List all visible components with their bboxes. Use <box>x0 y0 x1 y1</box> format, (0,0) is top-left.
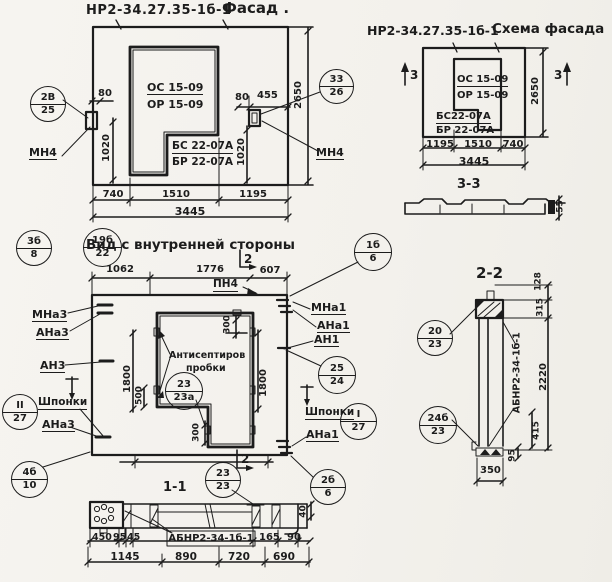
marker-33-26-top: 33 <box>330 74 344 86</box>
dim-500: 500 <box>136 381 145 411</box>
schema-title-name: Схема фасада <box>492 23 604 37</box>
inner-view-linework <box>43 250 358 506</box>
dim-1020-right: 1020 <box>237 132 247 172</box>
dim-300-top: 300 <box>224 310 233 340</box>
dim-1510-schema: 1510 <box>458 140 498 150</box>
dim-300-bottom: 300 <box>193 418 202 448</box>
facade-br-mark: БР 22-07А <box>172 157 233 168</box>
marker-20-23: 20 23 <box>417 320 453 356</box>
facade-bs-mark: БС 22-07А <box>172 141 233 154</box>
dim-80-right: 80 <box>235 93 249 103</box>
dim-455: 455 <box>257 91 278 101</box>
marker-3b-8: 3б 8 <box>16 230 52 266</box>
dim-40: 40 <box>300 499 309 525</box>
marker-23-23-top: 23 <box>216 468 230 480</box>
facade-title-code: НР2-34.27.35-1б-1 <box>86 4 231 17</box>
marker-24b-23-bottom: 23 <box>420 425 456 438</box>
schema-bs-mark: БС22-07А <box>436 112 491 124</box>
dim-3445-schema: 3445 <box>454 156 494 167</box>
ana3-label-2: АНа3 <box>42 419 75 432</box>
dim-1800-right: 1800 <box>259 363 269 403</box>
mna1-label: МНа1 <box>311 302 346 315</box>
marker-19b-22: 19б 22 <box>83 228 122 267</box>
facade-title-name: Фасад . <box>222 1 289 16</box>
dim-2650-facade: 2650 <box>294 75 304 115</box>
shponki-label-left: Шпонки <box>38 397 87 410</box>
marker-4b-10-top: 4б <box>23 467 37 479</box>
dim-607: 607 <box>250 266 290 276</box>
dim-740-schema: 740 <box>493 140 533 150</box>
section11-title: 1-1 <box>163 481 187 494</box>
facade-os-mark: ОС 15-09 <box>147 82 203 95</box>
marker-2v-25-bottom: 25 <box>31 104 65 117</box>
dim-2220: 2220 <box>539 357 549 397</box>
marker-2b-6: 2б 6 <box>310 469 346 505</box>
schema-br-mark: БР 22-07А <box>436 126 494 136</box>
marker-2b-6-bottom: 6 <box>311 487 345 500</box>
drawing-linework <box>0 0 612 582</box>
section33-title: 3-3 <box>457 178 481 191</box>
dim-80-left: 80 <box>98 89 112 99</box>
marker-24b-23-top: 24б <box>428 413 449 425</box>
dim-55-section33: 55 <box>557 194 566 220</box>
marker-25-24-top: 25 <box>330 363 344 375</box>
dim-95-s22: 95 <box>509 443 518 469</box>
marker-20-23-top: 20 <box>428 326 442 338</box>
dim-165: 165 <box>259 533 280 543</box>
section22-title: 2-2 <box>476 266 503 281</box>
technical-drawing-sheet: НР2-34.27.35-1б-1 Фасад . НР2-34.27.35-1… <box>0 0 612 582</box>
marker-33-26-bottom: 26 <box>320 86 353 99</box>
dim-90: 90 <box>287 533 301 543</box>
marker-II-27-top: II <box>16 400 23 412</box>
marker-1b-6: 1б 6 <box>354 233 392 271</box>
marker-II-27: II 27 <box>2 394 38 430</box>
dim-1145: 1145 <box>105 552 145 563</box>
antiseptic-label-1: Антисептиров <box>169 351 245 361</box>
marker-2v-25-top: 2В <box>41 92 56 104</box>
section2-mark-top: 2 <box>244 253 252 265</box>
marker-23-23a-bottom: 23а <box>166 391 202 404</box>
schema-os-mark: ОС 15-09 <box>457 75 508 87</box>
ana1-label-2: АНа1 <box>306 429 339 442</box>
dim-740-facade: 740 <box>93 190 133 200</box>
dim-315: 315 <box>537 293 546 323</box>
mna3-label: МНа3 <box>32 309 67 322</box>
dim-415: 415 <box>533 416 542 446</box>
abnr-label-s11: АБНР2-34-1б-1 <box>168 534 254 544</box>
marker-I-27: I 27 <box>340 403 377 440</box>
pn4-label: ПН4 <box>213 279 238 292</box>
marker-3b-8-bottom: 8 <box>17 248 51 261</box>
ana3-label: АНа3 <box>36 327 69 340</box>
facade-mn4-label-left: МН4 <box>29 147 57 160</box>
section33-linework <box>405 196 565 220</box>
ana1-label: АНа1 <box>317 320 350 333</box>
marker-19b-22-bottom: 22 <box>84 247 121 260</box>
marker-4b-10-bottom: 10 <box>12 479 47 492</box>
marker-19b-22-top: 19б <box>92 235 113 247</box>
section2-mark-bottom: 2 <box>241 453 249 465</box>
schema-title-code: НР2-34.27.35-1б-1 <box>367 25 499 38</box>
dim-95-s11: 95 <box>113 533 126 543</box>
facade-or-mark: ОР 15-09 <box>147 99 203 110</box>
antiseptic-label-2: пробки <box>186 364 226 374</box>
marker-2v-25: 2В 25 <box>30 86 66 122</box>
section3-mark-left: 3 <box>410 69 418 81</box>
marker-II-27-bottom: 27 <box>3 412 37 425</box>
marker-3b-8-top: 3б <box>27 236 41 248</box>
dim-1800-left: 1800 <box>123 359 133 399</box>
dim-350: 350 <box>480 466 501 476</box>
marker-23-23a-top: 23 <box>177 379 191 391</box>
marker-1b-6-top: 1б <box>366 240 380 252</box>
marker-23-23: 23 23 <box>205 462 241 498</box>
schema-linework <box>401 43 571 170</box>
section3-mark-right: 3 <box>554 69 562 81</box>
marker-I-27-top: I <box>357 409 361 421</box>
marker-33-26: 33 26 <box>319 69 354 104</box>
marker-25-24: 25 24 <box>318 356 356 394</box>
dim-45: 45 <box>127 533 140 543</box>
marker-I-27-bottom: 27 <box>341 421 376 434</box>
abnr-label-s22: АБНР2-34-1б-1 <box>512 328 522 418</box>
marker-1b-6-bottom: 6 <box>355 252 391 265</box>
dim-1020-left: 1020 <box>102 128 112 168</box>
marker-24b-23: 24б 23 <box>419 406 457 444</box>
dim-720: 720 <box>219 552 259 563</box>
marker-4b-10: 4б 10 <box>11 461 48 498</box>
dim-3445-facade: 3445 <box>170 206 210 217</box>
facade-mn4-label-right: МН4 <box>316 147 344 160</box>
marker-23-23a: 23 23а <box>165 372 203 410</box>
marker-20-23-bottom: 23 <box>418 338 452 351</box>
schema-or-mark: ОР 15-09 <box>457 91 508 101</box>
dim-1195-schema: 1195 <box>420 140 460 150</box>
marker-2b-6-top: 2б <box>321 475 335 487</box>
dim-1510-facade: 1510 <box>156 190 196 200</box>
an3-label: АН3 <box>40 360 65 373</box>
marker-23-23-bottom: 23 <box>206 480 240 493</box>
dim-690: 690 <box>264 552 304 563</box>
dim-890: 890 <box>166 552 206 563</box>
an1-label: АН1 <box>314 334 339 347</box>
dim-1776: 1776 <box>190 265 230 275</box>
dim-450: 450 <box>92 533 112 543</box>
dim-1195-facade: 1195 <box>233 190 273 200</box>
dim-2650-schema: 2650 <box>531 71 541 111</box>
marker-25-24-bottom: 24 <box>319 375 355 388</box>
